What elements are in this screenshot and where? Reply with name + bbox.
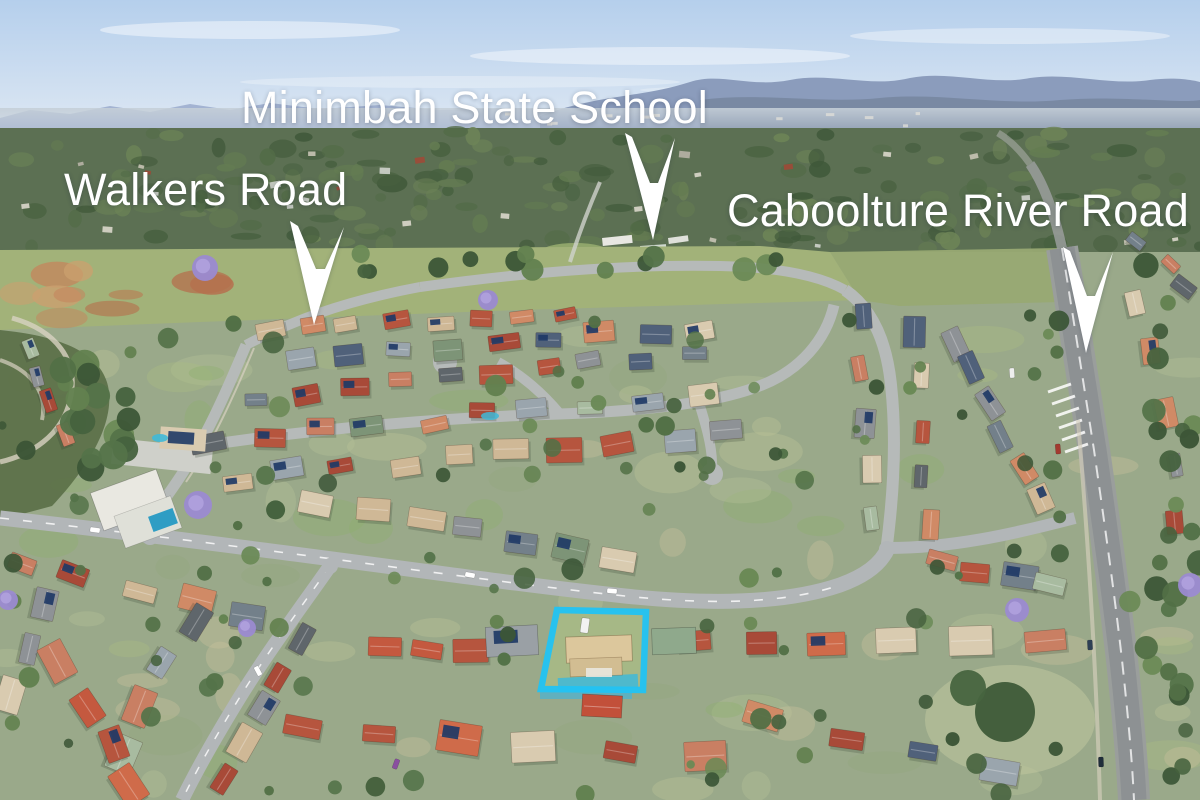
label-minimbah-state-school: Minimbah State School: [241, 85, 708, 130]
property-highlight-outline: [541, 610, 646, 690]
label-caboolture-river-road: Caboolture River Road: [727, 188, 1189, 233]
label-walkers-road: Walkers Road: [64, 167, 347, 212]
aerial-photo: Minimbah State School Walkers Road Caboo…: [0, 0, 1200, 800]
minimbah-state-school-arrow-icon: [625, 133, 675, 240]
caboolture-river-road-arrow-icon: [1063, 247, 1113, 353]
walkers-road-arrow-icon: [290, 221, 344, 325]
